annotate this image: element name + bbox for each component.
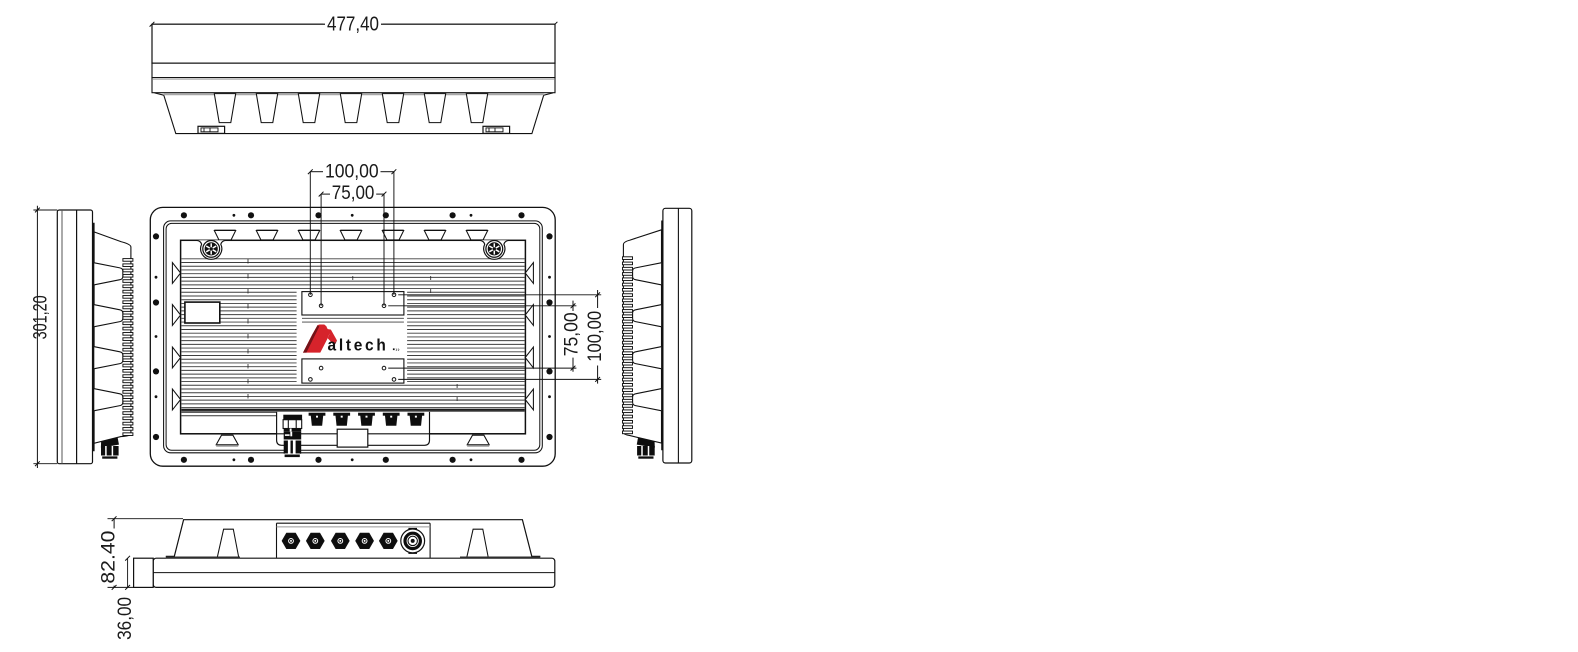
svg-text:75,00: 75,00 <box>562 312 583 356</box>
svg-text:››: ›› <box>395 347 399 354</box>
svg-text:100,00: 100,00 <box>585 311 606 362</box>
svg-text:75,00: 75,00 <box>332 183 375 204</box>
svg-text:36,00: 36,00 <box>114 597 136 640</box>
svg-text:82.40: 82.40 <box>98 530 120 583</box>
svg-text:301,20: 301,20 <box>31 295 52 339</box>
svg-text:altech: altech <box>328 336 389 355</box>
svg-text:477,40: 477,40 <box>327 14 379 36</box>
svg-text:100,00: 100,00 <box>325 161 379 182</box>
